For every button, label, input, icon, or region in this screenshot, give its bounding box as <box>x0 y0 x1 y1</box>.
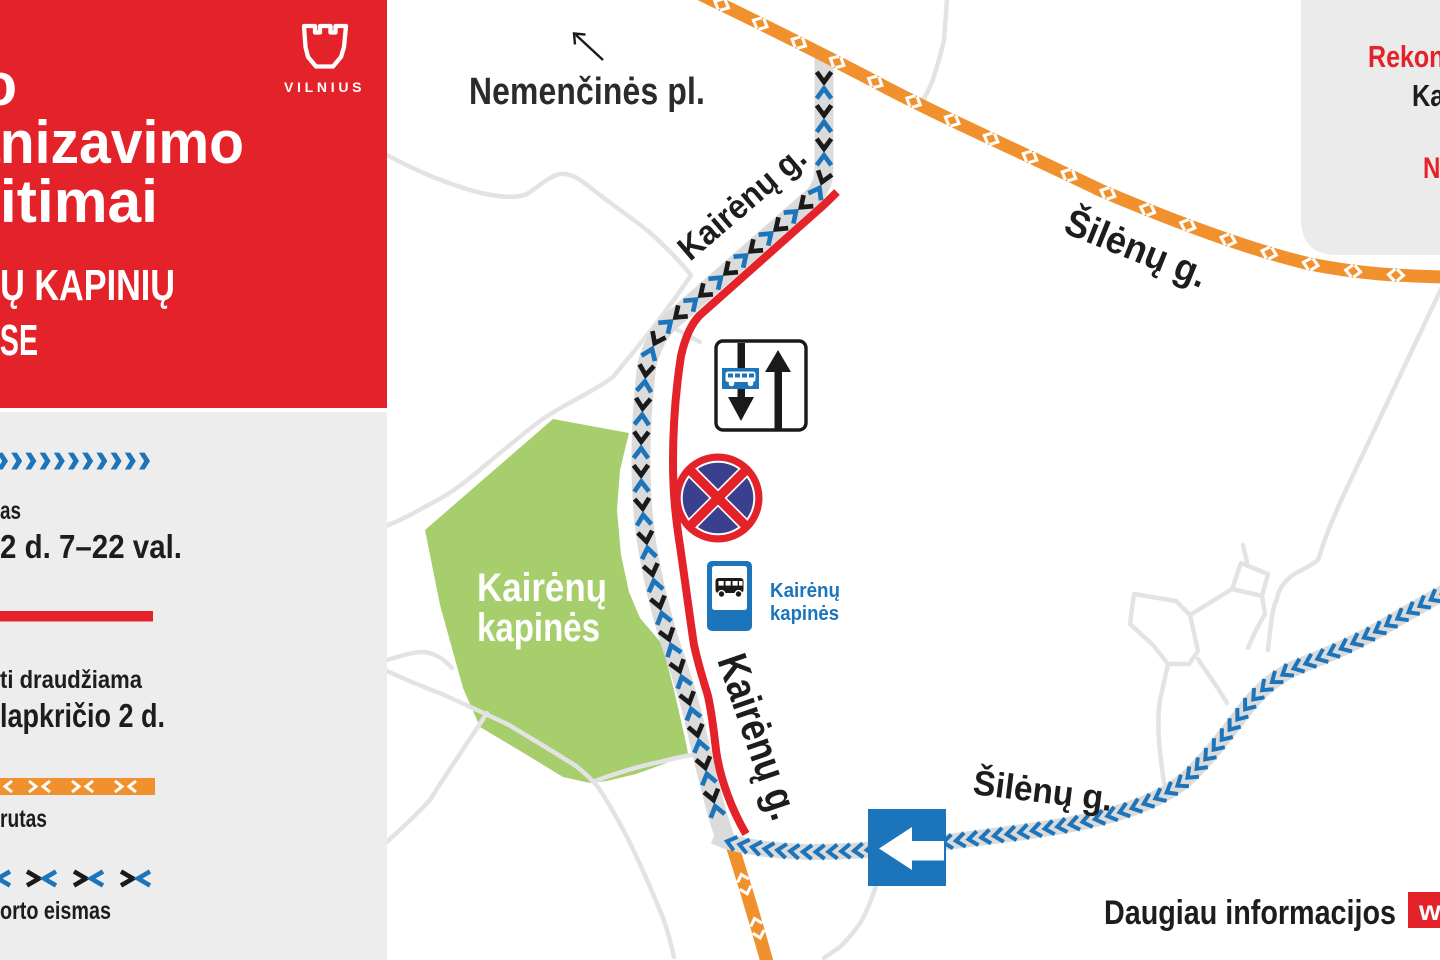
svg-text:organizavimo: organizavimo <box>0 109 244 176</box>
svg-text:as: as <box>0 497 21 525</box>
svg-text:orto eismas: orto eismas <box>0 897 111 925</box>
svg-text:Rekonstruojama: Rekonstruojama <box>1368 39 1440 74</box>
svg-text:rutas: rutas <box>0 805 47 833</box>
svg-text:2 d. 7–22 val.: 2 d. 7–22 val. <box>0 528 182 565</box>
svg-text:Kairėnų g.: Kairėnų g. <box>1412 78 1440 113</box>
svg-text:lapkričio 2 d.: lapkričio 2 d. <box>0 697 165 734</box>
svg-text:ti draudžiama: ti draudžiama <box>0 666 143 694</box>
svg-text:www: www <box>1418 895 1440 926</box>
svg-text:Nuo spalio: Nuo spalio <box>1423 152 1440 185</box>
svg-text:kapinės: kapinės <box>477 606 600 650</box>
svg-text:pakeitimai: pakeitimai <box>0 168 158 235</box>
svg-text:Kairėnų: Kairėnų <box>770 580 840 602</box>
svg-text:Nemenčinės pl.: Nemenčinės pl. <box>469 71 705 113</box>
svg-text:PRIEIGOSE: PRIEIGOSE <box>0 316 38 365</box>
svg-text:Eismo: Eismo <box>0 51 17 118</box>
svg-text:kapinės: kapinės <box>770 603 839 625</box>
svg-text:KAIRĖNŲ KAPINIŲ: KAIRĖNŲ KAPINIŲ <box>0 261 175 310</box>
svg-text:Kairėnų: Kairėnų <box>477 566 607 610</box>
svg-text:Daugiau informacijos: Daugiau informacijos <box>1104 894 1396 932</box>
